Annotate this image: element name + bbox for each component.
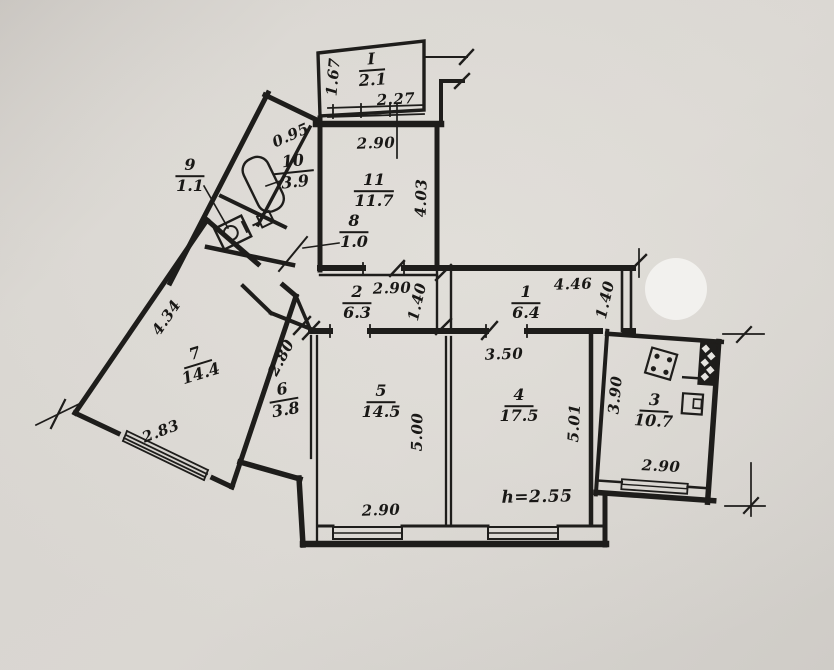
dim-room4-top: 3.50 bbox=[484, 346, 523, 363]
room-label-3: 3 10.7 bbox=[634, 391, 675, 431]
room-label-1: 1 6.4 bbox=[511, 284, 540, 322]
floor-plan-scan: I 2.1 11 11.7 8 1.0 10 3.9 9 1.1 2 6.3 1… bbox=[0, 0, 834, 670]
room7-walls bbox=[36, 220, 296, 487]
dim-hall2-width: 2.90 bbox=[372, 280, 411, 297]
dim-hall1-width: 4.46 bbox=[553, 276, 592, 293]
sink-icon bbox=[682, 393, 703, 414]
vent-shaft-icon bbox=[698, 342, 718, 385]
dim-room11-top: 2.90 bbox=[356, 135, 395, 152]
dim-room11-side: 4.03 bbox=[413, 178, 430, 217]
dim-room5-side: 5.00 bbox=[410, 413, 426, 452]
floorplan-drawing bbox=[0, 0, 834, 670]
dim-balcony-length: 2.27 bbox=[376, 91, 415, 109]
room-label-6: 6 3.8 bbox=[266, 379, 301, 421]
dim-kitchen-bottom: 2.90 bbox=[641, 458, 680, 476]
dim-room5-bottom: 2.90 bbox=[361, 502, 400, 519]
ceiling-height-note: h=2.55 bbox=[501, 488, 572, 507]
rooms-4-5-walls bbox=[303, 331, 606, 545]
dim-room4-side: 5.01 bbox=[566, 403, 584, 442]
dimension-ticks bbox=[723, 327, 765, 516]
stove-icon bbox=[645, 348, 677, 380]
white-circle-artifact bbox=[645, 258, 707, 320]
dim-balcony-width: 1.67 bbox=[324, 57, 343, 97]
dim-kitchen-side: 3.90 bbox=[606, 375, 625, 415]
room-label-10: 10 3.9 bbox=[272, 151, 316, 193]
room-label-11: 11 11.7 bbox=[354, 172, 394, 210]
room-label-5: 5 14.5 bbox=[362, 383, 401, 421]
room-label-9: 9 1.1 bbox=[175, 157, 204, 195]
room-label-4: 4 17.5 bbox=[500, 387, 539, 425]
room-label-8: 8 1.0 bbox=[339, 213, 368, 251]
room-label-2: 2 6.3 bbox=[342, 284, 371, 322]
room-label-balcony: I 2.1 bbox=[357, 50, 387, 89]
top-right-step-wall bbox=[424, 50, 473, 124]
